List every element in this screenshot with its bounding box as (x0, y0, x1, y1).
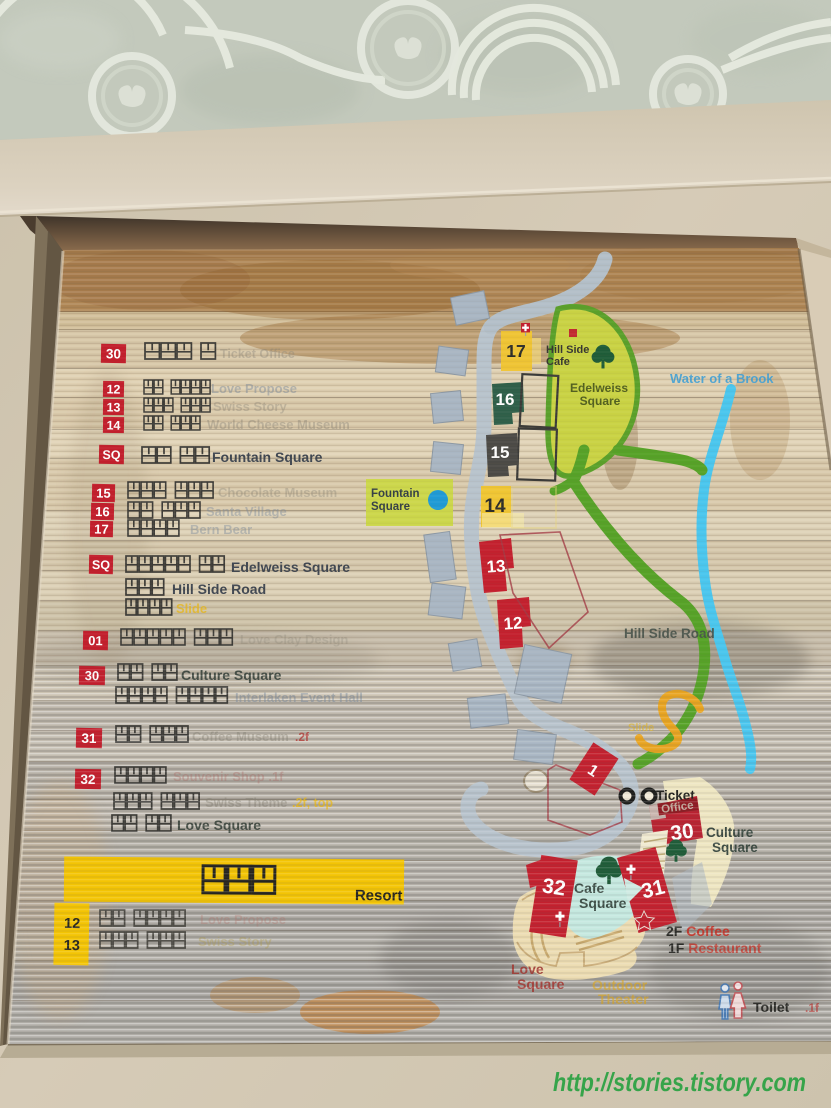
svg-text:http://stories.tistory.com: http://stories.tistory.com (553, 1067, 806, 1097)
